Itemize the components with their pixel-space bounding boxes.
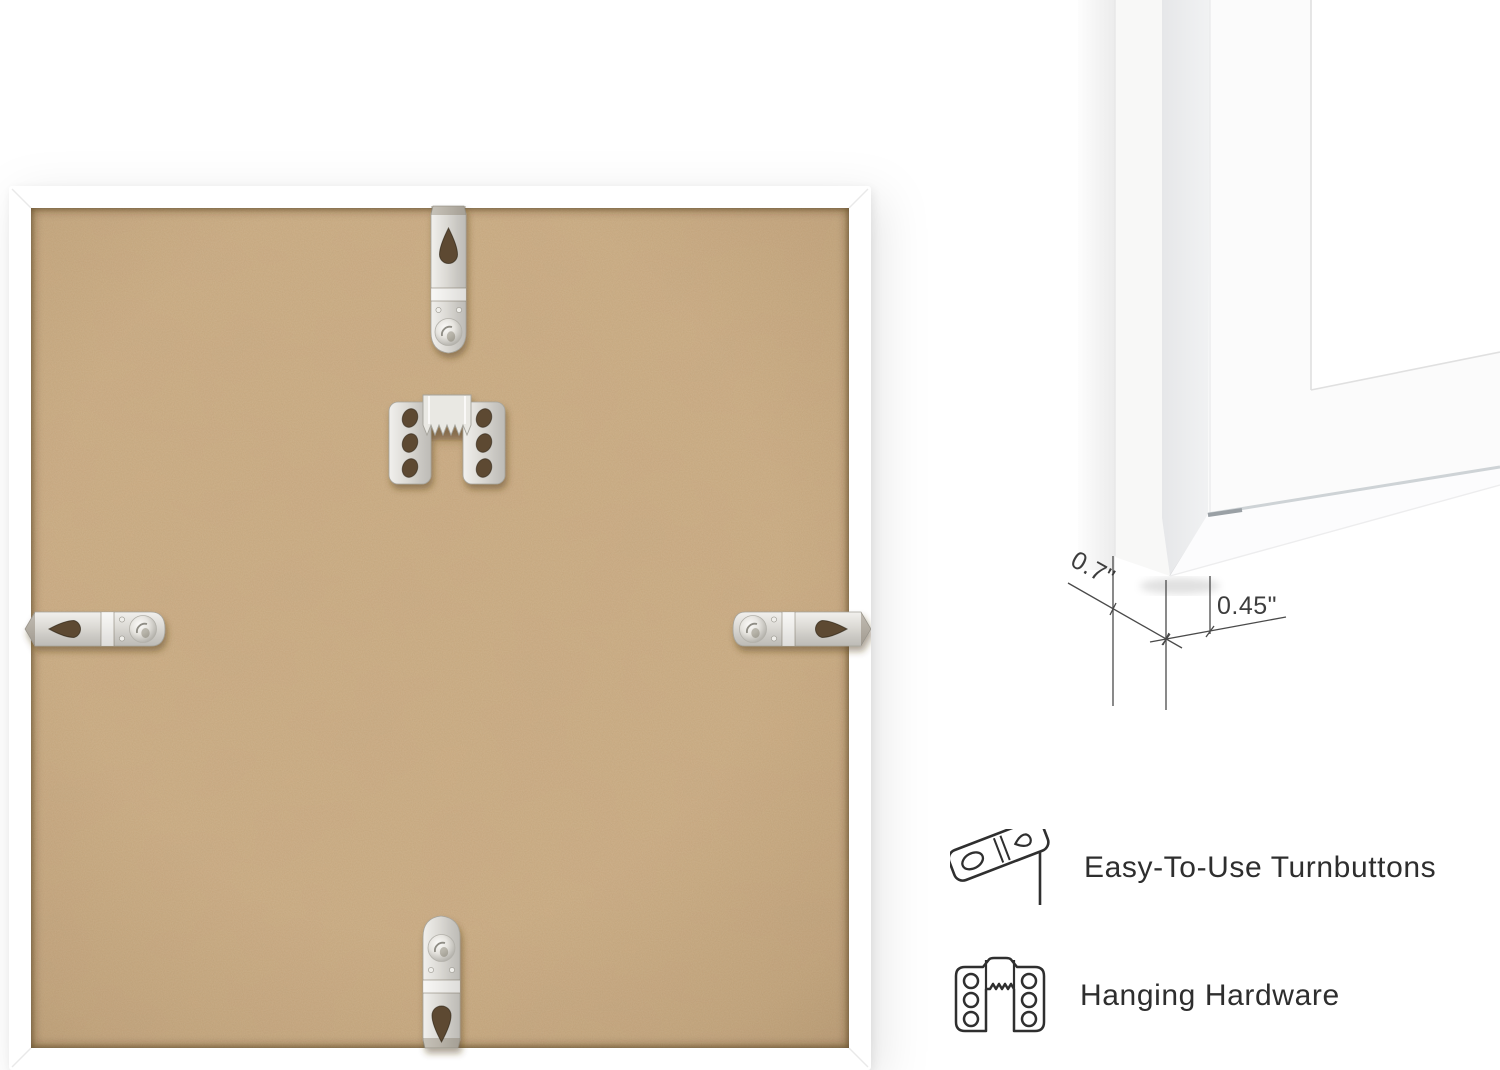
frame-front-face	[1162, 0, 1210, 576]
callout-turnbuttons-label: Easy-To-Use Turnbuttons	[1084, 851, 1436, 885]
frame-side-face	[1115, 0, 1170, 576]
callout-hanging-hardware-label: Hanging Hardware	[1080, 979, 1340, 1013]
mat-opening	[1313, 0, 1500, 388]
turnbutton-right	[733, 612, 871, 646]
turnbutton-top	[431, 206, 466, 353]
turnbutton-icon	[950, 829, 1054, 907]
frame-profile-photo: 0.7" 0.45"	[1040, 0, 1500, 730]
cast-shadow	[1078, 0, 1115, 570]
turnbutton-left	[25, 612, 165, 646]
dim-label-face: 0.45"	[1217, 592, 1277, 620]
callout-hanging-hardware: Hanging Hardware	[952, 946, 1340, 1046]
callout-turnbuttons: Easy-To-Use Turnbuttons	[950, 818, 1436, 918]
turnbutton-bottom	[423, 916, 460, 1048]
frame-back-photo	[9, 186, 871, 1070]
corner-shadow	[1140, 578, 1220, 594]
hanging-hardware-icon	[952, 956, 1048, 1036]
product-image: 0.7" 0.45" Easy-To-Use Turnbuttons	[0, 0, 1500, 1070]
